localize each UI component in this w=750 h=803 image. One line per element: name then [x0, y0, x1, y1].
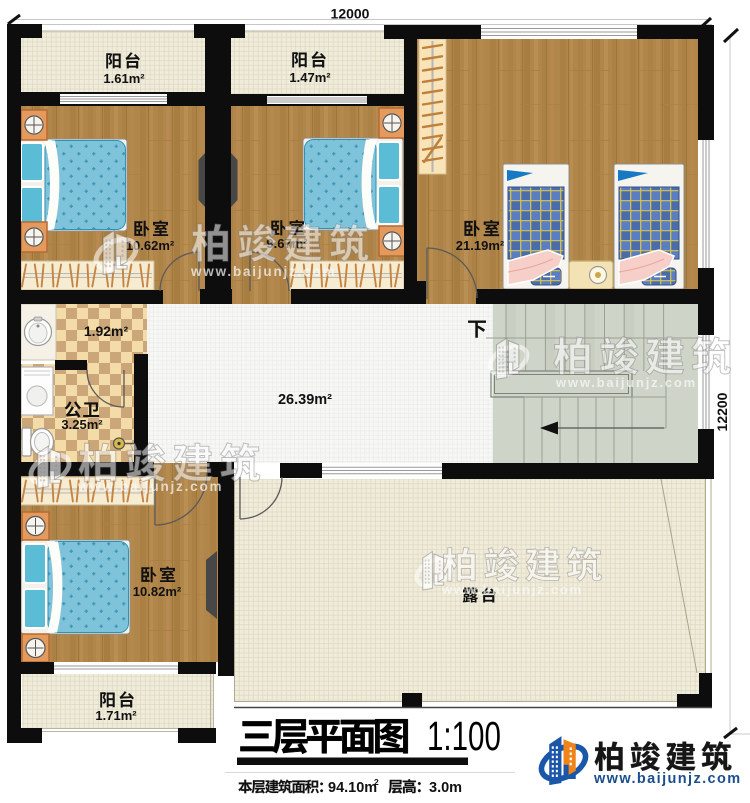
- svg-text:94.10m: 94.10m: [328, 780, 377, 796]
- svg-text:3.25m²: 3.25m²: [61, 417, 103, 432]
- svg-text:2: 2: [374, 777, 379, 787]
- svg-text:10.82m²: 10.82m²: [133, 584, 182, 599]
- svg-text:3.0m: 3.0m: [429, 780, 462, 796]
- svg-text:www.baijunjz.com: www.baijunjz.com: [190, 264, 336, 279]
- svg-text:1.61m²: 1.61m²: [103, 71, 145, 86]
- svg-text:12200: 12200: [714, 392, 730, 431]
- svg-text:1.92m²: 1.92m²: [84, 323, 129, 339]
- svg-text:1.71m²: 1.71m²: [95, 708, 137, 723]
- svg-text:21.19m²: 21.19m²: [456, 238, 505, 253]
- svg-text:1.47m²: 1.47m²: [289, 70, 331, 85]
- svg-text:26.39m²: 26.39m²: [278, 392, 332, 408]
- svg-text:12000: 12000: [331, 6, 370, 22]
- svg-text:www.baijunjz.com: www.baijunjz.com: [593, 771, 742, 787]
- svg-text:1:100: 1:100: [427, 713, 501, 759]
- svg-text:www.baijunjz.com: www.baijunjz.com: [441, 582, 583, 597]
- svg-text:www.baijunjz.com: www.baijunjz.com: [77, 479, 223, 494]
- svg-text:www.baijunjz.com: www.baijunjz.com: [555, 375, 697, 390]
